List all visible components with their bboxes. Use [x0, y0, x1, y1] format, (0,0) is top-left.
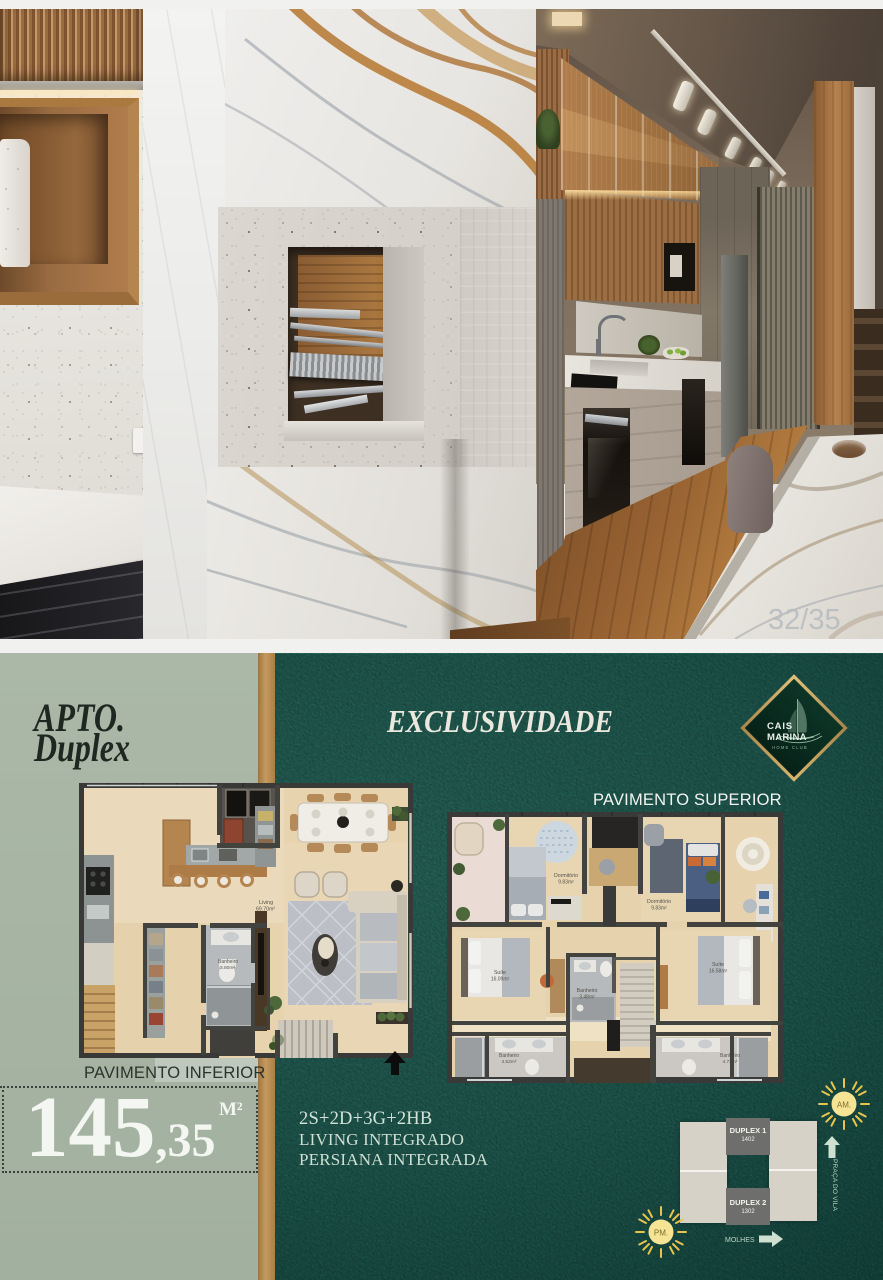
svg-text:HOME CLUB: HOME CLUB [772, 745, 808, 750]
svg-text:16.58m²: 16.58m² [709, 969, 728, 975]
svg-text:69.70m²: 69.70m² [256, 907, 275, 913]
svg-text:CAIS: CAIS [767, 721, 793, 732]
svg-text:16.09m²: 16.09m² [491, 977, 510, 983]
svg-text:9.83m²: 9.83m² [558, 880, 574, 886]
svg-text:Suíte: Suíte [712, 962, 724, 968]
svg-text:MARINA: MARINA [767, 732, 807, 743]
svg-text:AM.: AM. [837, 1101, 851, 1110]
svg-text:Dormitório: Dormitório [554, 873, 578, 879]
svg-text:Banheiro: Banheiro [499, 1053, 519, 1059]
svg-text:9.83m²: 9.83m² [651, 906, 667, 912]
svg-text:PM.: PM. [654, 1229, 668, 1238]
svg-text:Banheiro: Banheiro [577, 988, 598, 994]
svg-text:Banheiro: Banheiro [218, 959, 238, 965]
svg-text:3.48m²: 3.48m² [579, 995, 595, 1001]
svg-text:Dormitório: Dormitório [647, 899, 671, 905]
svg-text:Suíte: Suíte [494, 970, 506, 976]
svg-text:3.80m²: 3.80m² [220, 965, 235, 971]
svg-text:4.52m²: 4.52m² [502, 1059, 517, 1065]
svg-text:Living: Living [259, 900, 273, 906]
